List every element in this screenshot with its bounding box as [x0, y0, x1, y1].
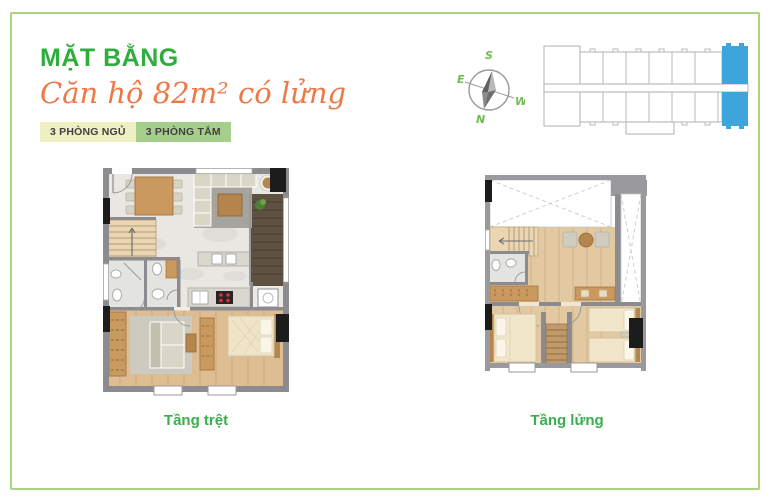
toilet-icon [492, 260, 500, 271]
page-subtitle: Căn hộ 82m² có lửng [40, 76, 346, 110]
keyplan-bottom-band [580, 92, 722, 122]
windows [486, 230, 490, 250]
stove-icon [216, 291, 233, 304]
bathroom [487, 251, 529, 285]
mezzanine-floor-plan [483, 172, 651, 374]
side-table-icon [186, 334, 196, 352]
console-icon [200, 318, 214, 370]
compass-label-east: E [457, 73, 465, 86]
building-key-plan [540, 38, 752, 136]
compass-icon: S E W N [453, 46, 525, 126]
mezzanine-caption: Tầng lửng [483, 412, 651, 429]
daybed-icon [150, 322, 184, 368]
badge-bedrooms: 3 PHÒNG NGỦ [40, 122, 136, 142]
kitchen-island-icon [198, 252, 250, 266]
dining-table-icon [126, 177, 182, 215]
compass-label-south: S [485, 49, 493, 62]
bath-cabinet-icon [166, 260, 177, 278]
round-table-icon [579, 233, 593, 247]
ground-floor-caption: Tầng trệt [100, 412, 292, 429]
sink-icon [111, 270, 121, 278]
toilet-icon [113, 289, 122, 301]
badge-row: 3 PHÒNG NGỦ 3 PHÒNG TẮM [40, 122, 346, 142]
sofa-icon [194, 170, 256, 228]
page-title: MẶT BẰNG [40, 44, 346, 73]
compass-label-west: W [515, 95, 525, 108]
coffee-table-icon [218, 194, 242, 216]
balcony-deck [250, 194, 286, 286]
desk-icon [575, 287, 615, 300]
stairs-icon [108, 220, 156, 260]
void-open-below [490, 180, 611, 227]
ground-floor-plan [100, 164, 292, 396]
double-bed-icon [490, 314, 536, 362]
double-bed-icon [228, 314, 280, 358]
void-strip [621, 194, 641, 306]
keyplan-top-band [580, 52, 722, 84]
page: MẶT BẰNG Căn hộ 82m² có lửng 3 PHÒNG NGỦ… [0, 0, 769, 500]
sitting-area [563, 232, 609, 247]
wardrobe-icon [490, 286, 538, 301]
tv-cabinet-icon [109, 312, 126, 376]
toilet-icon [153, 263, 162, 275]
header: MẶT BẰNG Căn hộ 82m² có lửng 3 PHÒNG NGỦ… [40, 44, 346, 142]
compass-label-north: N [476, 113, 485, 126]
keyplan-bottom-wing [626, 122, 674, 134]
armchair-icon [563, 232, 577, 247]
sink-icon [152, 289, 164, 299]
keyplan-corridor [544, 84, 748, 92]
armchair-icon [595, 232, 609, 247]
kitchen-counter-icon [188, 288, 250, 307]
washer-icon [253, 286, 286, 310]
badge-bathrooms: 3 PHÒNG TẮM [136, 122, 231, 142]
sink-icon [506, 259, 516, 267]
